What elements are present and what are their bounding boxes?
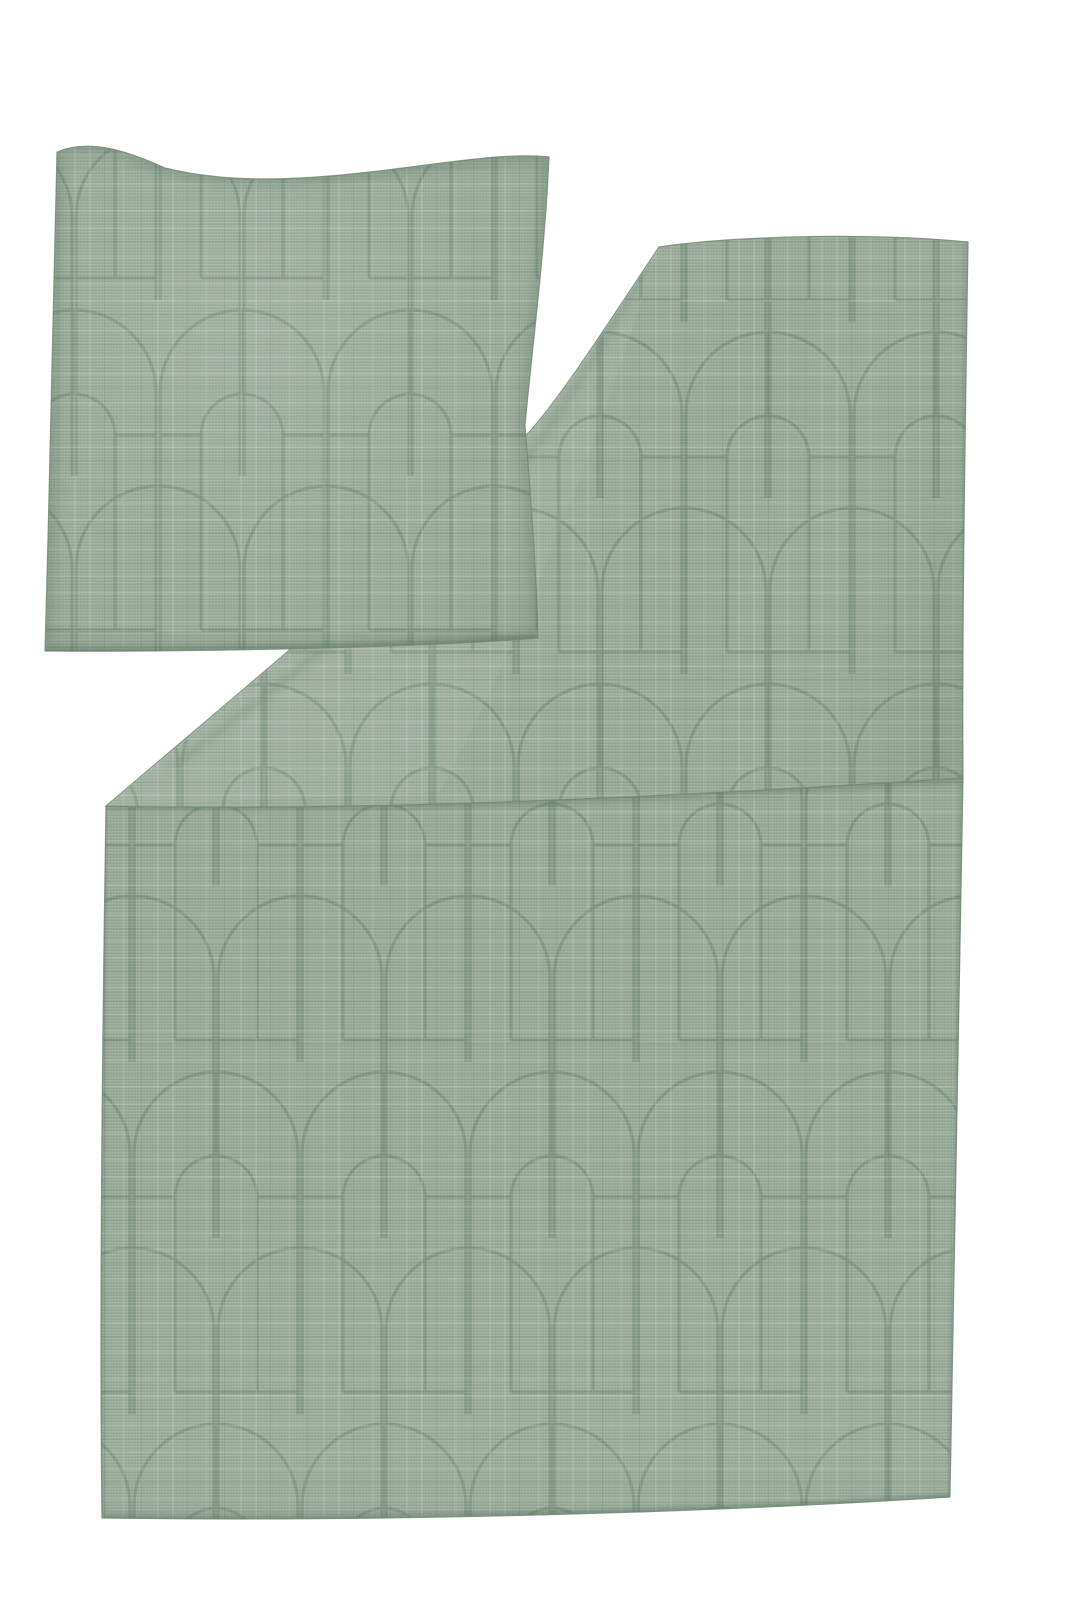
bedding-photo-canvas xyxy=(0,0,1068,1600)
bedding-product-photo xyxy=(0,0,1068,1600)
